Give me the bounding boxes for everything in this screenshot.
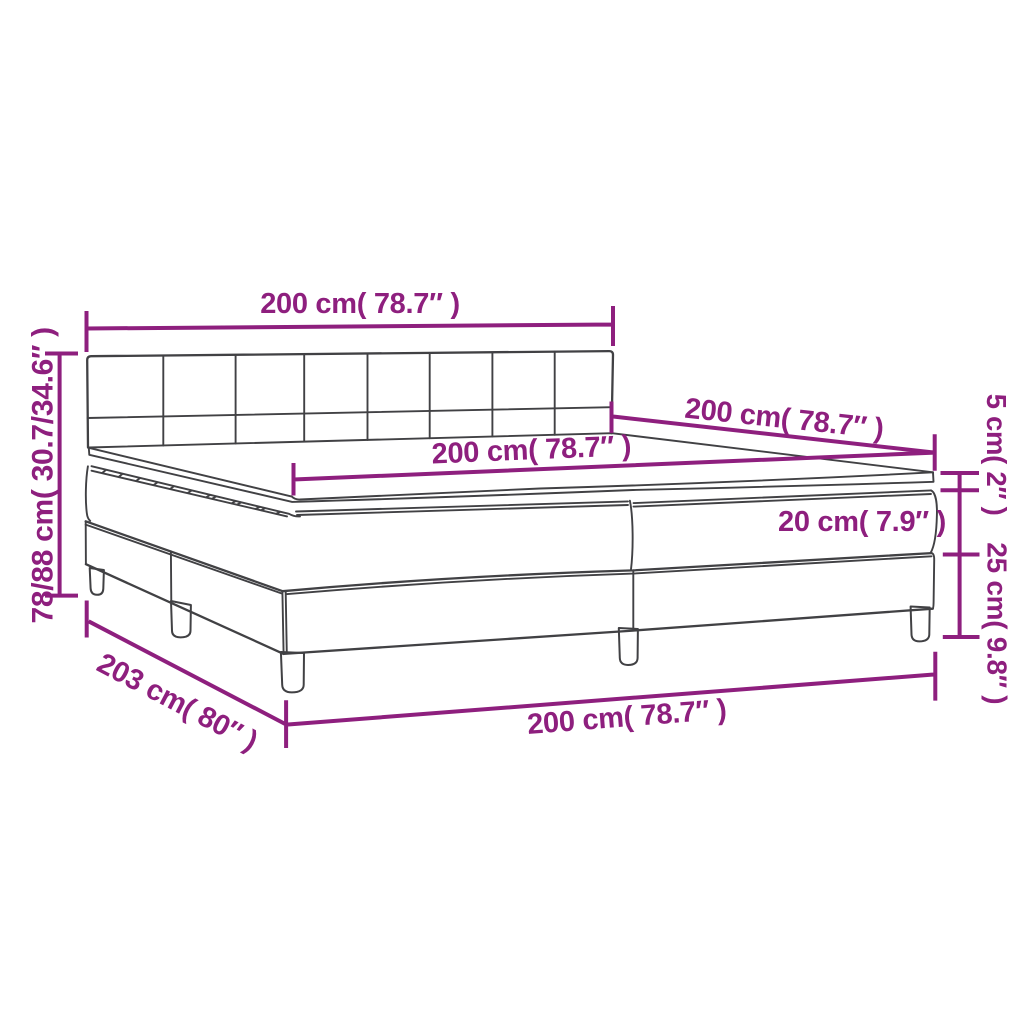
- svg-text:20 cm( 7.9″ ): 20 cm( 7.9″ ): [778, 506, 946, 538]
- svg-text:5 cm( 2″ ): 5 cm( 2″ ): [981, 394, 1012, 516]
- svg-text:200 cm( 78.7″ ): 200 cm( 78.7″ ): [260, 288, 460, 320]
- svg-text:78/88 cm( 30.7/34.6″ ): 78/88 cm( 30.7/34.6″ ): [27, 327, 60, 623]
- svg-text:25 cm( 9.8″ ): 25 cm( 9.8″ ): [982, 542, 1013, 704]
